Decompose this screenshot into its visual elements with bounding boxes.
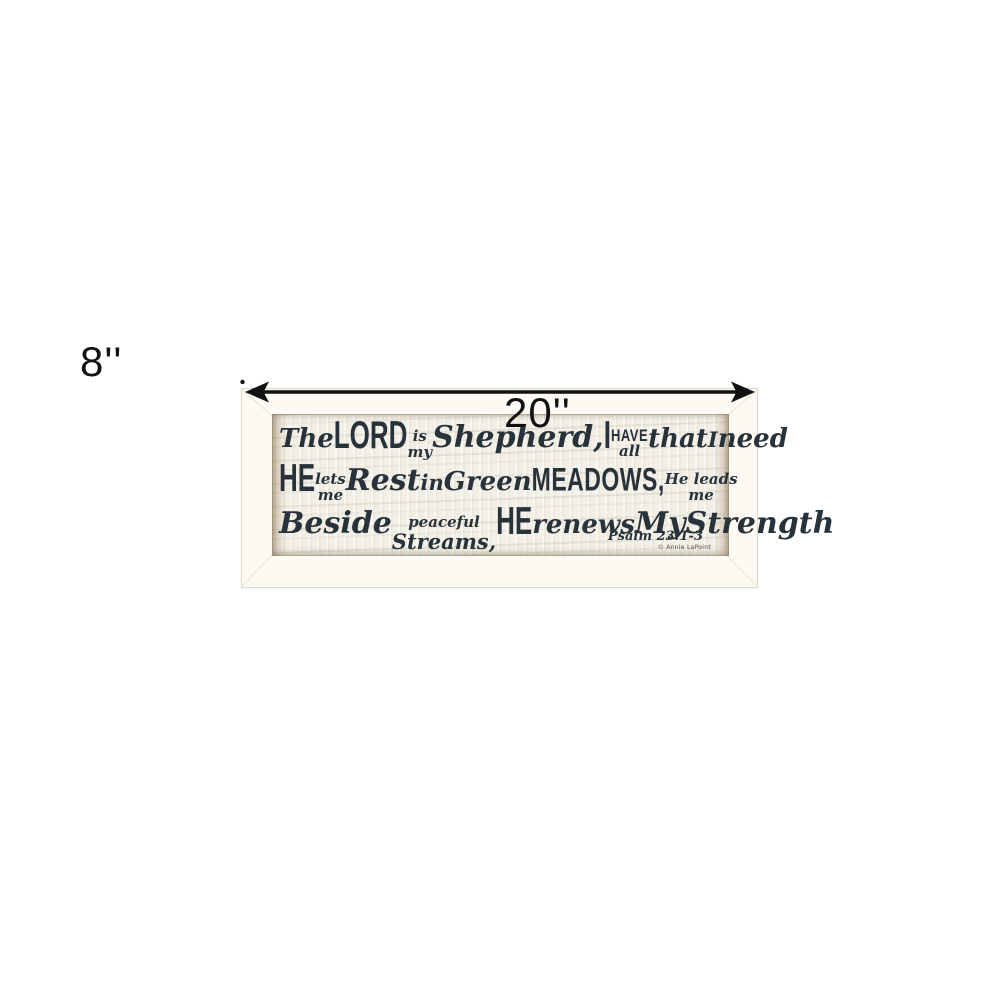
art-word: lets <box>315 472 346 487</box>
frame-miter-line <box>242 554 273 586</box>
artist-signature: © Annie LaPoint <box>658 545 711 551</box>
art-word: MEADOWS, <box>532 463 665 496</box>
art-word: LORD <box>334 415 408 454</box>
art-word: I <box>604 415 611 454</box>
product-dimension-image: 8'' 20'' TheLORDismyShepherd,IHAVEalltha… <box>0 0 1000 1000</box>
width-dimension-arrow <box>240 379 760 403</box>
art-word: Green <box>444 469 532 495</box>
height-dimension-label: 8'' <box>80 341 122 383</box>
art-word: HE <box>496 501 532 540</box>
stacked-words: HAVEall <box>611 430 648 459</box>
art-word: is <box>413 429 427 444</box>
art-word: need <box>718 426 788 452</box>
picture-frame: TheLORDismyShepherd,IHAVEallthatIneedHEl… <box>241 388 758 588</box>
art-word: my <box>407 445 432 460</box>
art-canvas: TheLORDismyShepherd,IHAVEallthatIneedHEl… <box>272 414 729 556</box>
stacked-words: peacefulStreams, <box>392 515 496 552</box>
art-word: in <box>421 472 444 493</box>
frame-miter-line <box>726 554 757 586</box>
art-word: Beside <box>279 509 392 539</box>
art-word: peaceful <box>408 515 479 530</box>
psalm-reference: Psalm 23:1-3 <box>608 530 703 543</box>
art-word: Rest <box>346 466 421 496</box>
stray-dot <box>240 380 244 384</box>
art-word: Strength <box>686 509 835 539</box>
stacked-words: He leadsme <box>665 472 738 503</box>
art-word: that <box>648 426 708 452</box>
art-word: Streams, <box>392 531 496 552</box>
art-word: HAVE <box>611 427 648 443</box>
stacked-words: letsme <box>315 472 346 503</box>
width-dimension-label: 20'' <box>504 392 571 434</box>
stacked-words: ismy <box>407 429 432 460</box>
art-word: I <box>708 429 718 450</box>
art-word: The <box>279 426 334 452</box>
art-word: HE <box>279 458 315 497</box>
art-word: me <box>318 488 343 503</box>
art-word: He leads <box>665 472 738 487</box>
art-word: all <box>619 444 640 459</box>
art-word: me <box>688 488 713 503</box>
art-text-line: TheLORDismyShepherd,IHAVEallthatIneed <box>279 423 722 466</box>
